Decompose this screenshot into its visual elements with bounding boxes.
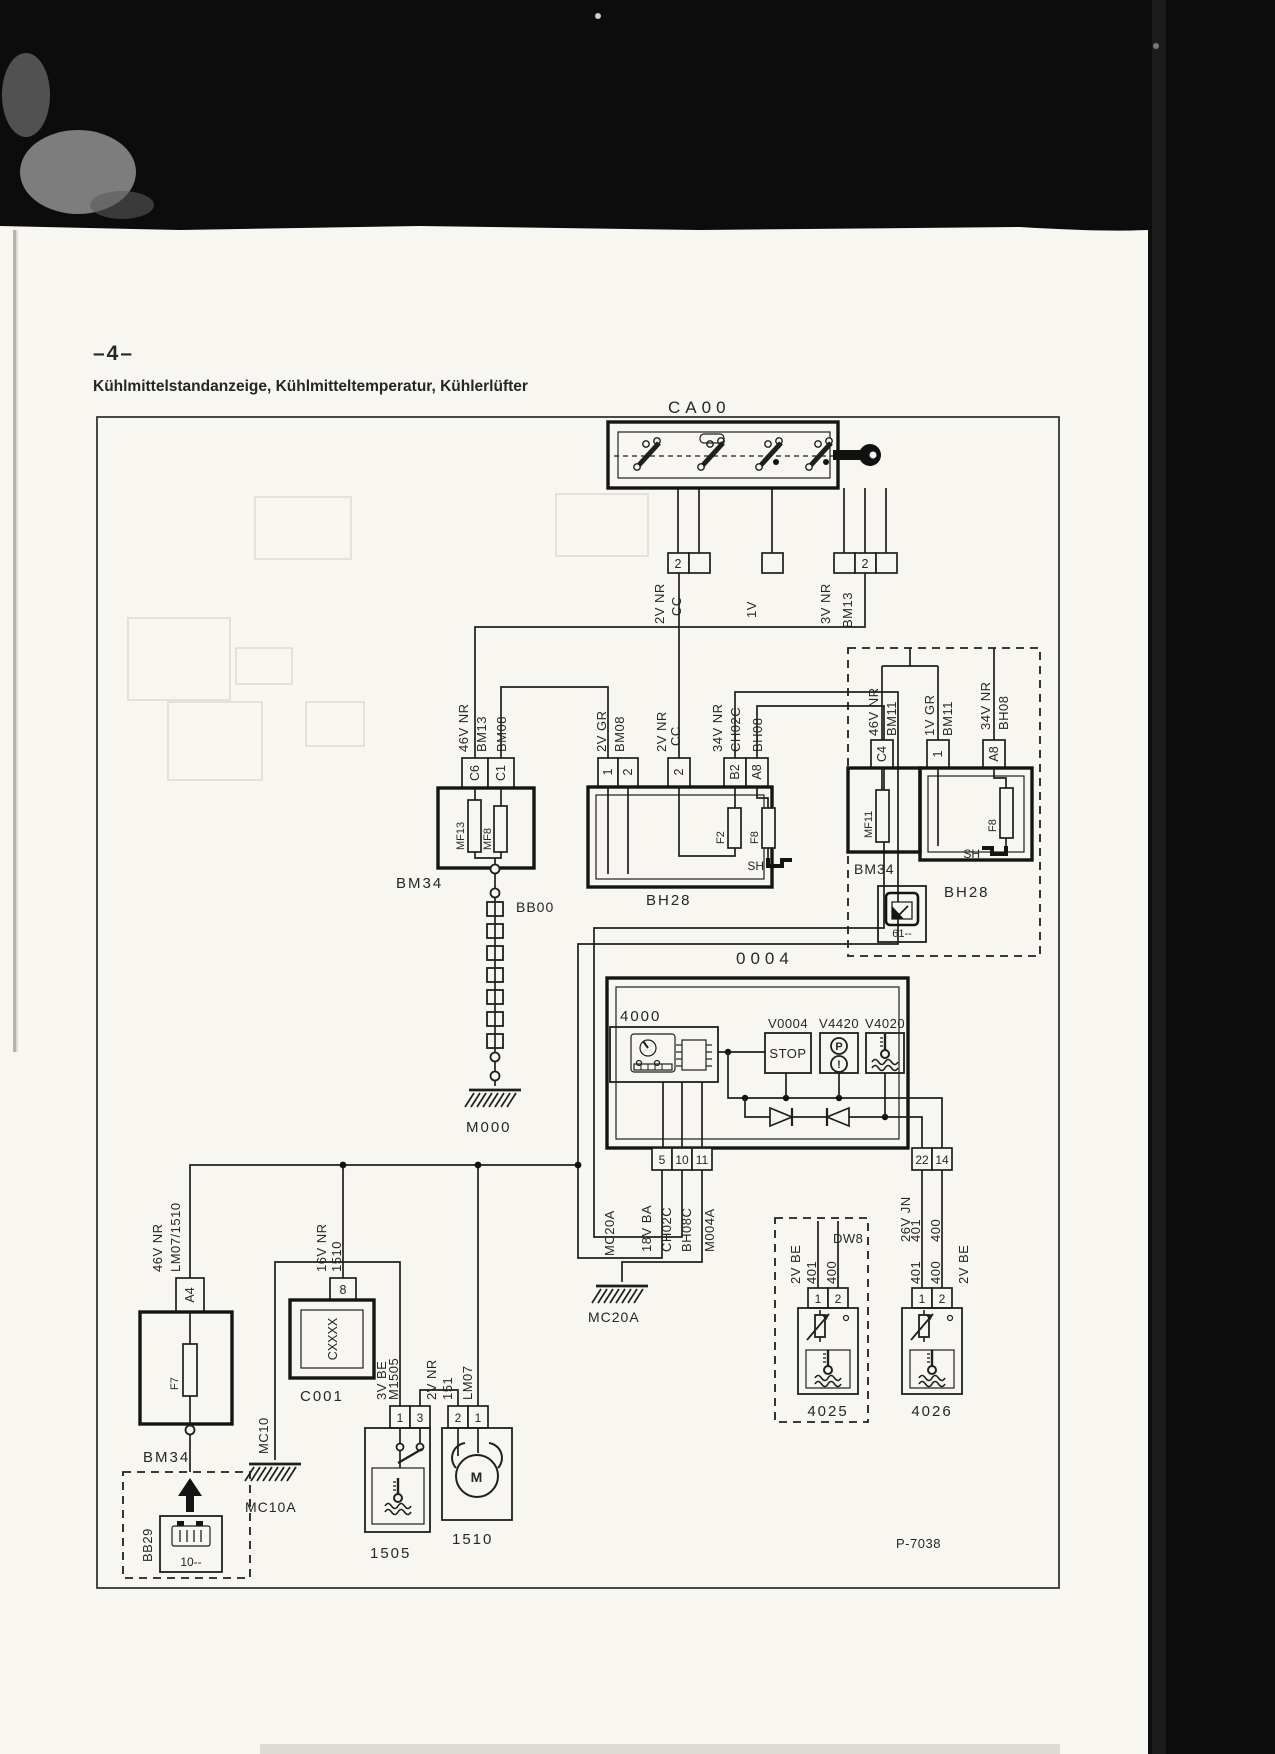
component-id: BM34 [396, 875, 443, 892]
wire-label: 151 [440, 1377, 455, 1400]
coolant-switch-1505: 3V BE M1505 1 3 1505 [365, 1358, 430, 1562]
pin-number: 2 [675, 557, 682, 571]
cluster-id: 4000 [620, 1008, 661, 1025]
pin-id: C6 [468, 765, 482, 781]
fusebox-bm34-lower: 46V NR LM07/1510 A4 F7 BM34 [140, 1202, 232, 1466]
fuse-label: MF8 [482, 828, 494, 850]
component-id: BH28 [944, 884, 990, 901]
fuse-label: F2 [715, 831, 727, 844]
wire-label: 34V NR [710, 703, 725, 752]
lamp-id: V0004 [768, 1016, 808, 1031]
fuse-label: F8 [749, 831, 761, 844]
scan-smudge [90, 191, 154, 219]
fuse-mf8 [494, 806, 507, 852]
pin-number: 1 [475, 1411, 482, 1425]
fuse-f8 [762, 808, 775, 848]
wire-label: 400 [928, 1261, 943, 1284]
wire-label: BM13 [840, 592, 855, 628]
ground-symbol-m000 [465, 1090, 521, 1107]
wire-label: 2V NR [652, 583, 667, 624]
scan-top-border [0, 0, 1160, 1754]
component-id: 4025 [807, 1403, 848, 1420]
component-id: BB00 [516, 899, 554, 915]
terminal [491, 1072, 500, 1081]
coolant-temperature-icon [919, 1350, 945, 1387]
pin-number: 5 [659, 1153, 666, 1167]
fuse-f7 [183, 1344, 197, 1396]
wire-label: 1V [744, 601, 759, 618]
shunt-symbol [982, 846, 1006, 854]
component-id: C001 [300, 1388, 344, 1405]
wire-label: 2V GR [594, 710, 609, 752]
wire-label: M004A [702, 1208, 717, 1252]
ground-symbol-mc20a [592, 1286, 648, 1303]
pin-number: 1 [931, 750, 945, 757]
page-title: Kühlmittelstandanzeige, Kühlmitteltemper… [93, 378, 528, 395]
option-variant-box: 46V NR BM11 1V GR BM11 34V NR BH08 C4 1 … [848, 648, 1040, 956]
wire-label: LM07 [460, 1365, 475, 1400]
page-spine-shadow [13, 230, 16, 1052]
ground-mc10: MC10 MC10A [245, 1417, 301, 1515]
switch-contact-icon [634, 438, 660, 470]
fuse-label: F8 [987, 819, 999, 832]
coolant-temperature-icon [815, 1350, 841, 1387]
component-id: 1510 [452, 1531, 493, 1548]
wire-label: CC [668, 726, 683, 746]
lamp-id: V4020 [865, 1016, 905, 1031]
terminal [491, 889, 500, 898]
wire-label: 18V BA [639, 1205, 654, 1252]
wire-label: BM08 [612, 716, 627, 752]
pin-number: 8 [340, 1283, 347, 1297]
ignition-switch-ca00: CA00 2 2 2V NR CC 1V 3V NR BM13 [608, 398, 897, 628]
bm34-box [438, 788, 534, 868]
pin-number: 1 [601, 768, 615, 775]
component-id: BB29 [140, 1528, 155, 1562]
sensor-4026: 401 400 2V BE 1 2 4026 [902, 1245, 971, 1420]
wire-label: CH02C [728, 707, 743, 752]
component-id: BM34 [854, 861, 895, 877]
wire-label: BH08C [679, 1208, 694, 1252]
fan-motor-1510: 2V NR 151 LM07 2 1 M 1510 [424, 1359, 512, 1548]
battery-unit-bb00: BB00 M000 [465, 889, 554, 1137]
scanned-manual-page: –4– Kühlmittelstandanzeige, Kühlmittelte… [0, 0, 1275, 1754]
wire-label: 401 [908, 1219, 923, 1242]
ground-id: M000 [466, 1119, 512, 1136]
wire-supply-bus [190, 1165, 578, 1278]
switch-contact-icon [756, 438, 782, 470]
pin-number: 1 [815, 1292, 822, 1306]
lamp-id: V4420 [819, 1016, 859, 1031]
pin-number: 14 [935, 1153, 949, 1167]
option-code: DW8 [833, 1231, 863, 1246]
scan-right-border [1148, 0, 1275, 1754]
component-id: BM34 [143, 1449, 190, 1466]
wire-label: 2V NR [424, 1359, 439, 1400]
terminal [491, 1053, 500, 1062]
component-id: BH28 [646, 892, 692, 909]
scan-speck [595, 13, 601, 19]
connector-cell [876, 553, 897, 573]
wire-label: 400 [824, 1261, 839, 1284]
unit-0004-box [607, 978, 908, 1148]
pin-number: 2 [455, 1411, 462, 1425]
page-number: –4– [93, 342, 134, 365]
terminal [186, 1426, 195, 1435]
option-sensor-4025: DW8 2V BE 401 400 1 2 4025 [775, 1218, 868, 1422]
temperature-sensor-icon [911, 1310, 933, 1342]
component-id: 4026 [911, 1403, 952, 1420]
fuse-label: MF11 [863, 811, 875, 838]
scan-right-border-shade [1152, 0, 1166, 1754]
scan-speck [1153, 43, 1159, 49]
connector-cell [762, 553, 783, 573]
fuse-label: F7 [169, 1377, 181, 1390]
pin-id: C1 [494, 765, 508, 781]
wire-label: 46V NR [866, 687, 881, 736]
bh28-box [588, 787, 772, 887]
coolant-temperature-icon [385, 1478, 411, 1515]
wire-label: BM11 [940, 701, 955, 736]
pin-number: 2 [621, 768, 635, 775]
pin-id: A8 [750, 764, 764, 779]
wire-label: 401 [804, 1261, 819, 1284]
wire-label: 1V GR [922, 694, 937, 736]
battery-bb29: BB29 10-- [123, 1472, 250, 1578]
wire-label: 3V NR [818, 583, 833, 624]
component-id: 0004 [736, 949, 794, 968]
pin-number: 11 [696, 1153, 709, 1167]
pin-number: 2 [672, 768, 686, 775]
motor-letter: M [471, 1469, 484, 1485]
connector-cell [834, 553, 855, 573]
schematic-ref: 10-- [180, 1555, 201, 1569]
fuse-mf13 [468, 800, 481, 852]
drawing-number: P-7038 [896, 1536, 941, 1551]
ground-id: MC10A [245, 1499, 297, 1515]
relay-box-bh28: 2V GR BM08 2V NR CC 34V NR CH02C BH08 1 … [588, 703, 792, 909]
component-id: 1505 [370, 1545, 411, 1562]
connector-cell [689, 553, 710, 573]
wire-label: LM07/1510 [168, 1202, 183, 1272]
fuse-label: MF13 [455, 822, 467, 850]
pin-number: 2 [862, 557, 869, 571]
page-spine-shadow [16, 230, 18, 1052]
pin-number: 1 [397, 1411, 404, 1425]
pin-id: B2 [728, 764, 742, 779]
wire-label: BM11 [884, 701, 899, 736]
terminal [491, 865, 500, 874]
pin-number: 2 [939, 1292, 946, 1306]
pin-id: A8 [987, 746, 1001, 761]
instrument-unit-0004: 0004 4000 V0004 V442 [607, 949, 952, 1252]
module-code: CXXXX [326, 1317, 340, 1360]
coolant-temperature-icon [872, 1034, 898, 1071]
switch-contact-icon [806, 438, 832, 470]
fuse-mf11 [876, 790, 889, 842]
pin-number: 10 [675, 1153, 689, 1167]
parking-brake-icon: P [835, 1041, 842, 1053]
fusebox-bm34-upper: 46V NR BM13 BM08 C6 C1 MF13 MF8 BM34 [396, 703, 534, 892]
wire-label: BH08 [750, 717, 765, 752]
wire-label: 16V NR [314, 1223, 329, 1272]
motor-fan-icon: M [452, 1443, 502, 1497]
shunt-label: SH [747, 859, 764, 873]
wire-label: 2V BE [956, 1245, 971, 1284]
pin-number: 1 [919, 1292, 926, 1306]
wire-label: BM13 [474, 716, 489, 752]
wire-label: CH02C [659, 1207, 674, 1252]
pin-number: 22 [915, 1153, 929, 1167]
chip-icon [676, 1040, 712, 1070]
gauge-icon [631, 1034, 675, 1072]
scan-smudge [2, 53, 50, 137]
wire-label: 46V NR [150, 1223, 165, 1272]
schematic-ref: 61-- [892, 928, 912, 940]
ground-id: MC20A [588, 1309, 640, 1325]
shunt-label: SH [963, 847, 980, 861]
wire-label: 401 [908, 1261, 923, 1284]
wire-label: CC [669, 596, 684, 616]
cluster-4000-box [610, 1027, 718, 1082]
scan-bottom-smear [260, 1744, 1060, 1754]
wire-2v-gr-bm08 [501, 687, 608, 758]
window-lifter-ref-icon: 61-- [878, 886, 926, 942]
pin-id: A4 [183, 1287, 197, 1302]
wire-label: M1505 [386, 1358, 401, 1400]
wire-label: 2V BE [788, 1245, 803, 1284]
connector-c001: 16V NR 1510 8 CXXXX C001 [290, 1223, 374, 1405]
wire-label: 400 [928, 1219, 943, 1242]
temperature-sensor-icon [807, 1310, 829, 1342]
stop-lamp-label: STOP [769, 1046, 806, 1061]
wire-label: 1510 [329, 1241, 344, 1272]
ground-symbol-mc10a [245, 1464, 301, 1481]
pin-number: 3 [417, 1411, 424, 1425]
fuse-f2 [728, 808, 741, 848]
fuse-f8-option [1000, 788, 1013, 838]
battery-icon [172, 1521, 210, 1546]
wire-label: 2V NR [654, 711, 669, 752]
pin-id: C4 [875, 746, 889, 762]
wire-label: 34V NR [978, 681, 993, 730]
wire-label: BM08 [494, 716, 509, 752]
wire-label: BH08 [996, 695, 1011, 730]
wire-label: 46V NR [456, 703, 471, 752]
component-id: CA00 [668, 398, 731, 417]
arrow-up-icon [178, 1478, 202, 1512]
page-bleed-through [128, 494, 648, 780]
warning-icon: ! [837, 1059, 841, 1071]
switch-contact [398, 1449, 422, 1463]
wire-label: MC10 [256, 1417, 271, 1454]
pin-number: 2 [835, 1292, 842, 1306]
ignition-key-icon [833, 444, 881, 466]
wire-label: MC20A [602, 1210, 617, 1256]
